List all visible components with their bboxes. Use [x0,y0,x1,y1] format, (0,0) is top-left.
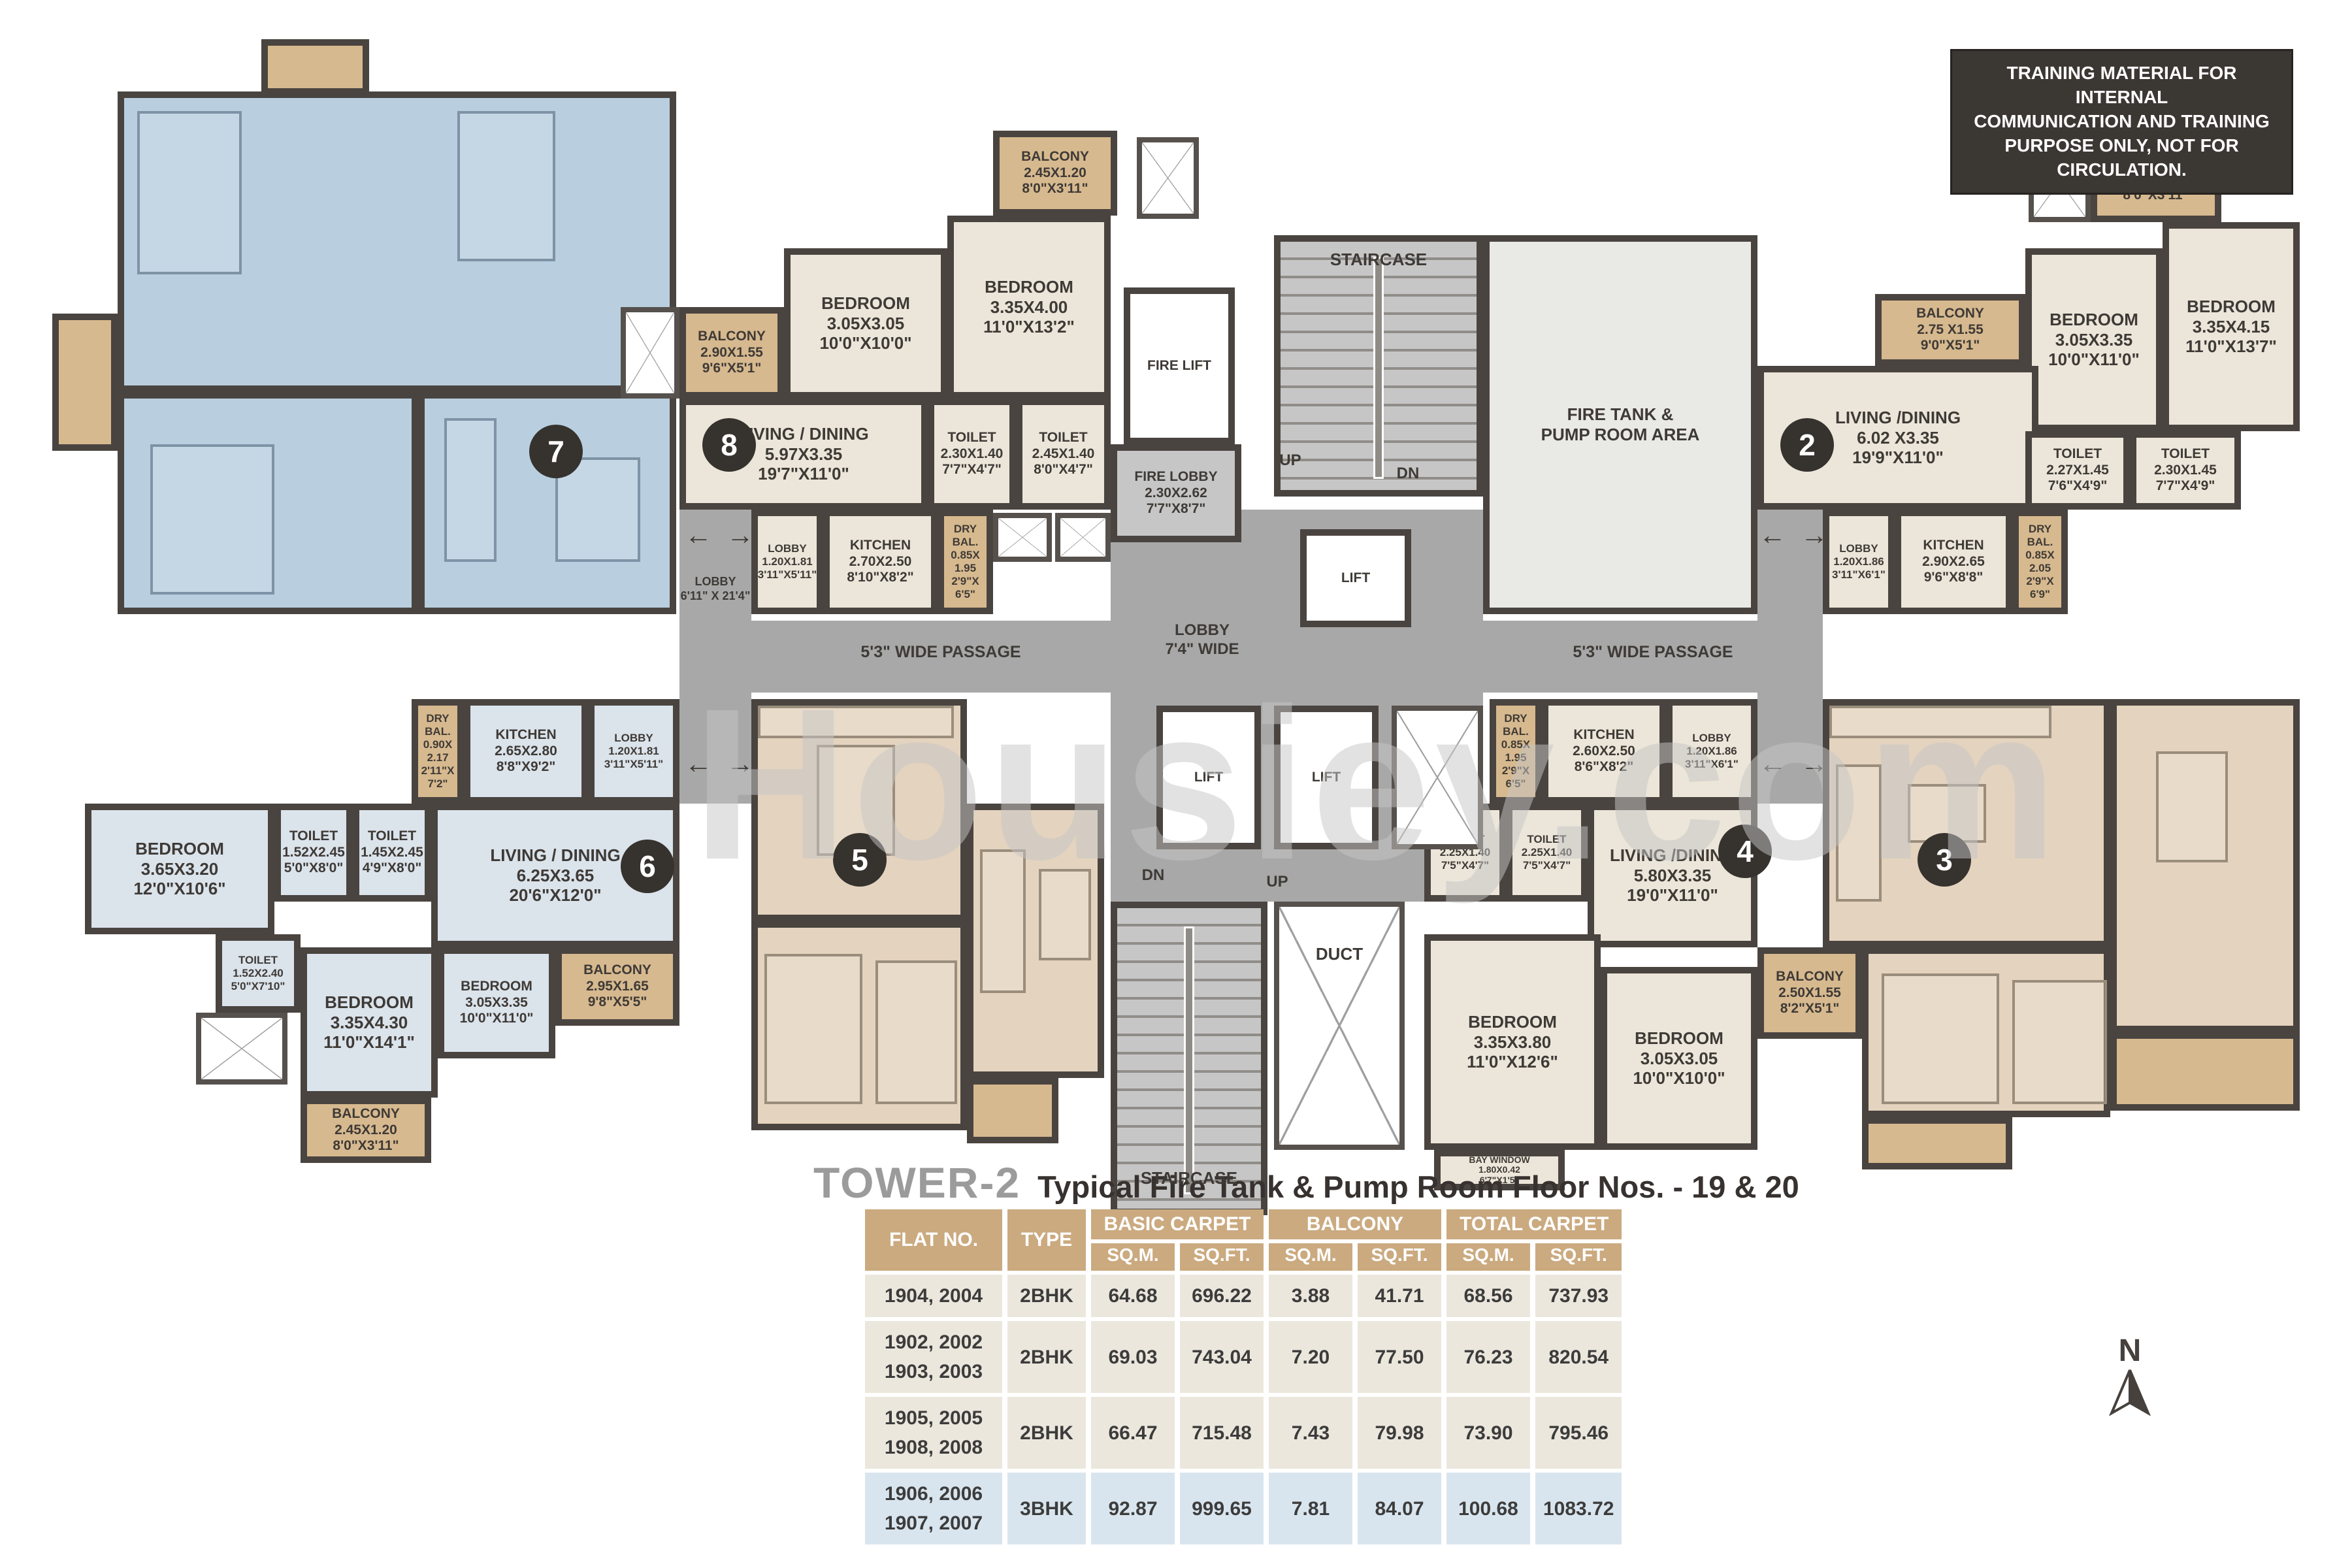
apt3-balcony-right [2110,1032,2300,1111]
col-group-balcony: BALCONY [1269,1209,1441,1239]
apt2-bedroom-1: BEDROOM3.05X3.3510'0"X11'0" [2025,248,2163,431]
apt8-toilet-1: TOILET2.30X1.407'7"X4'7" [928,399,1016,510]
cell-value: 76.23 [1446,1321,1530,1393]
apt2-kitchen: KITCHEN2.90X2.659'6"X8'8" [1895,510,2012,614]
area-table: FLAT NO.TYPEBASIC CARPETBALCONYTOTAL CAR… [860,1205,1627,1548]
col-flat-no: FLAT NO. [865,1209,1002,1271]
apt8-kitchen: KITCHEN2.70X2.508'10"X8'2" [823,510,938,614]
apt4-bedroom-2: BEDROOM3.05X3.0510'0"X10'0" [1601,967,1757,1150]
col-group-total-carpet: TOTAL CARPET [1446,1209,1622,1239]
apt4-lobby: LOBBY1.20X1.863'11"X6'1" [1666,699,1757,804]
cell-flat-no: 1905, 2005 1908, 2008 [865,1397,1002,1469]
col-type: TYPE [1007,1209,1086,1271]
staircase-top-label: STAIRCASE [1274,250,1483,270]
apt2-balcony-left: BALCONY2.75 X1.559'0"X5'1" [1875,294,2025,366]
north-indicator: N [2094,1333,2166,1419]
cell-value: 737.93 [1535,1275,1622,1317]
cell-type: 2BHK [1007,1275,1086,1317]
apt4-dry-balcony: DRYBAL.0.85X1.952'9"X6'5" [1490,699,1542,804]
apt2-dry-balcony: DRYBAL.0.85X2.052'9"X6'9" [2012,510,2068,614]
apt7-bed-1 [137,111,242,274]
apt7-bed-3 [150,444,274,595]
unit-number-3: 3 [1918,833,1971,887]
cell-value: 92.87 [1091,1473,1175,1544]
table-row: 1904, 20042BHK64.68696.223.8841.7168.567… [865,1275,1622,1317]
apt6-balcony-2: BALCONY2.45X1.208'0"X3'11" [301,1098,431,1163]
cell-value: 100.68 [1446,1473,1530,1544]
apt7-balcony-top [261,39,369,95]
unit-number-7: 7 [529,425,583,478]
cell-flat-no: 1904, 2004 [865,1275,1002,1317]
apt6-toilet-2: TOILET1.45X2.454'9"X8'0" [353,804,431,902]
col-sub-sqm: SQ.M. [1269,1243,1352,1271]
shaft-4 [1392,706,1483,849]
core-fire-lobby: FIRE LOBBY2.30X2.627'7"X8'7" [1111,444,1241,542]
cell-value: 84.07 [1358,1473,1441,1544]
col-sub-sqm: SQ.M. [1091,1243,1175,1271]
cell-value: 77.50 [1358,1321,1441,1393]
col-sub-sqft: SQ.FT. [1180,1243,1264,1271]
disclaimer-line: PURPOSE ONLY, NOT FOR CIRCULATION. [1959,134,2285,182]
entry-arrows-right-bottom: ←→ [1759,748,1842,779]
apt8-bedroom-1: BEDROOM3.05X3.0510'0"X10'0" [784,248,947,399]
entry-arrows-left-top: ←→ [685,519,768,551]
dn-top-label: DN [1379,464,1437,483]
apt6-dry-balcony: DRYBAL.0.90X2.172'11"X7'2" [412,699,464,804]
apt6-toilet-3: TOILET1.52X2.405'0"X7'10" [216,934,301,1013]
cell-type: 2BHK [1007,1321,1086,1393]
north-arrow-icon [2109,1369,2151,1416]
disclaimer-line: TRAINING MATERIAL FOR INTERNAL [1959,61,2285,110]
core-lift-bottom-1: LIFT [1156,706,1261,849]
apt8-dry-balcony: DRYBAL.0.85X1.952'9"X6'5" [938,510,993,614]
table-row: 1902, 2002 1903, 20032BHK69.03743.047.20… [865,1321,1622,1393]
cell-value: 66.47 [1091,1397,1175,1469]
apt8-balcony-left: BALCONY2.90X1.559'6"X5'1" [679,307,784,399]
apt4-kitchen: KITCHEN2.60X2.508'6"X8'2" [1542,699,1666,804]
cell-flat-no: 1902, 2002 1903, 2003 [865,1321,1002,1393]
apt7-sofa [444,418,497,562]
plan-title: TOWER-2 Typical Fire Tank & Pump Room Fl… [813,1158,1799,1207]
cell-value: 79.98 [1358,1397,1441,1469]
apt6-balcony-1: BALCONY2.95X1.659'8"X5'5" [555,947,679,1026]
col-sub-sqm: SQ.M. [1446,1243,1530,1271]
apt4-bedroom-1: BEDROOM3.35X3.8011'0"X12'6" [1424,934,1601,1150]
cell-value: 1083.72 [1535,1473,1622,1544]
entry-arrows-right-top: ←→ [1759,519,1842,551]
apt5-table [1039,869,1091,960]
area-table-body: 1904, 20042BHK64.68696.223.8841.7168.567… [865,1275,1622,1544]
shaft-1 [621,307,679,399]
cell-flat-no: 1906, 2006 1907, 2007 [865,1473,1002,1544]
apt3-bed-1 [1882,973,1999,1104]
col-sub-sqft: SQ.FT. [1358,1243,1441,1271]
apt8-bedroom-2: BEDROOM3.35X4.0011'0"X13'2" [947,216,1111,399]
apt3-area-3 [2110,699,2300,1032]
left-lobby-label: LOBBY6'11" X 21'4" [673,575,758,604]
up-bottom-label: UP [1248,872,1307,891]
apt4-toilet-2: TOILET2.25X1.407'5"X4'7" [1506,804,1588,902]
north-label: N [2094,1333,2166,1369]
apt3-bed-2 [2012,980,2107,1104]
table-row: 1905, 2005 1908, 20082BHK66.47715.487.43… [865,1397,1622,1469]
passage-right-label: 5'3" WIDE PASSAGE [1522,642,1784,662]
cell-value: 743.04 [1180,1321,1264,1393]
shaft-6 [993,513,1052,562]
apt6-bedroom-1: BEDROOM3.65X3.2012'0"X10'6" [85,804,274,934]
core-fire-tank: FIRE TANK &PUMP ROOM AREA [1483,235,1757,614]
dn-bottom-label: DN [1124,866,1183,885]
apt8-toilet-2: TOILET2.45X1.408'0"X4'7" [1016,399,1111,510]
apt5-balcony [967,1078,1058,1143]
shaft-2 [1137,137,1199,219]
apt5-bed-2 [875,960,957,1104]
apt2-toilet-2: TOILET2.30X1.457'7"X4'9" [2130,431,2241,510]
cell-type: 2BHK [1007,1397,1086,1469]
unit-number-4: 4 [1718,825,1772,878]
apt7-balcony-left [52,314,118,451]
core-lift-bottom-2: LIFT [1274,706,1379,849]
col-group-basic-carpet: BASIC CARPET [1091,1209,1264,1239]
cell-type: 3BHK [1007,1473,1086,1544]
shaft-7 [1055,513,1111,562]
cell-value: 64.68 [1091,1275,1175,1317]
apt6-bedroom-3: BEDROOM3.05X3.3510'0"X11'0" [438,947,555,1058]
unit-number-6: 6 [621,840,674,893]
cell-value: 7.43 [1269,1397,1352,1469]
disclaimer-line: COMMUNICATION AND TRAINING [1959,110,2285,134]
cell-value: 696.22 [1180,1275,1264,1317]
cell-value: 7.81 [1269,1473,1352,1544]
up-top-label: UP [1261,451,1320,470]
apt3-sofa [1836,764,1882,902]
col-sub-sqft: SQ.FT. [1535,1243,1622,1271]
core-duct [1274,902,1405,1150]
cell-value: 73.90 [1446,1397,1530,1469]
shaft-5 [196,1013,287,1085]
apt4-balcony: BALCONY2.50X1.558'2"X5'1" [1757,947,1862,1039]
apt5-kitchen-counter [758,706,954,738]
cell-value: 69.03 [1091,1321,1175,1393]
apt3-balcony-bottom [1862,1117,2012,1169]
cell-value: 3.88 [1269,1275,1352,1317]
apt7-bed-2 [457,111,555,261]
cell-value: 999.65 [1180,1473,1264,1544]
tower-label: TOWER-2 [813,1158,1021,1207]
core-fire-lift: FIRE LIFT [1124,287,1235,444]
unit-number-5: 5 [833,833,887,887]
entry-arrows-left-bottom: ←→ [685,748,768,779]
floor-plan-sheet: BALCONY2.90X1.559'6"X5'1"BEDROOM3.05X3.0… [0,0,2352,1568]
passage-left-label: 5'3" WIDE PASSAGE [810,642,1071,662]
apt2-toilet-1: TOILET2.27X1.457'6"X4'9" [2025,431,2130,510]
cell-value: 68.56 [1446,1275,1530,1317]
cell-value: 41.71 [1358,1275,1441,1317]
unit-number-8: 8 [702,418,756,472]
core-lift-top: LIFT [1300,529,1411,627]
apt6-lobby: LOBBY1.20X1.813'11"X5'11" [588,699,679,804]
cell-value: 820.54 [1535,1321,1622,1393]
apt6-toilet-1: TOILET1.52X2.455'0"X8'0" [274,804,353,902]
staircase-bottom-label: STAIRCASE [1111,1168,1267,1189]
apt3-kitchen-counter [1829,706,2051,738]
apt2-bedroom-2: BEDROOM3.35X4.1511'0"X13'7" [2163,222,2300,431]
cell-value: 715.48 [1180,1397,1264,1469]
apt6-bedroom-2: BEDROOM3.35X4.3011'0"X14'1" [301,947,438,1098]
apt4-living: LIVING /DINING5.80X3.3519'0"X11'0" [1588,804,1757,947]
disclaimer-box: TRAINING MATERIAL FOR INTERNAL COMMUNICA… [1950,49,2293,195]
apt8-balcony-top: BALCONY2.45X1.208'0"X3'11" [993,131,1117,216]
duct-label: DUCT [1274,944,1405,965]
cell-value: 795.46 [1535,1397,1622,1469]
unit-number-2: 2 [1780,418,1834,472]
central-lobby-label: LOBBY7'4" WIDE [1117,621,1287,659]
apt6-kitchen: KITCHEN2.65X2.808'8"X9'2" [464,699,588,804]
apt5-sofa [980,849,1026,993]
area-table-header: FLAT NO.TYPEBASIC CARPETBALCONYTOTAL CAR… [865,1209,1622,1271]
apt5-bed-1 [764,954,862,1104]
cell-value: 7.20 [1269,1321,1352,1393]
table-row: 1906, 2006 1907, 20073BHK92.87999.657.81… [865,1473,1622,1544]
apt3-dining-table [2156,751,2228,862]
